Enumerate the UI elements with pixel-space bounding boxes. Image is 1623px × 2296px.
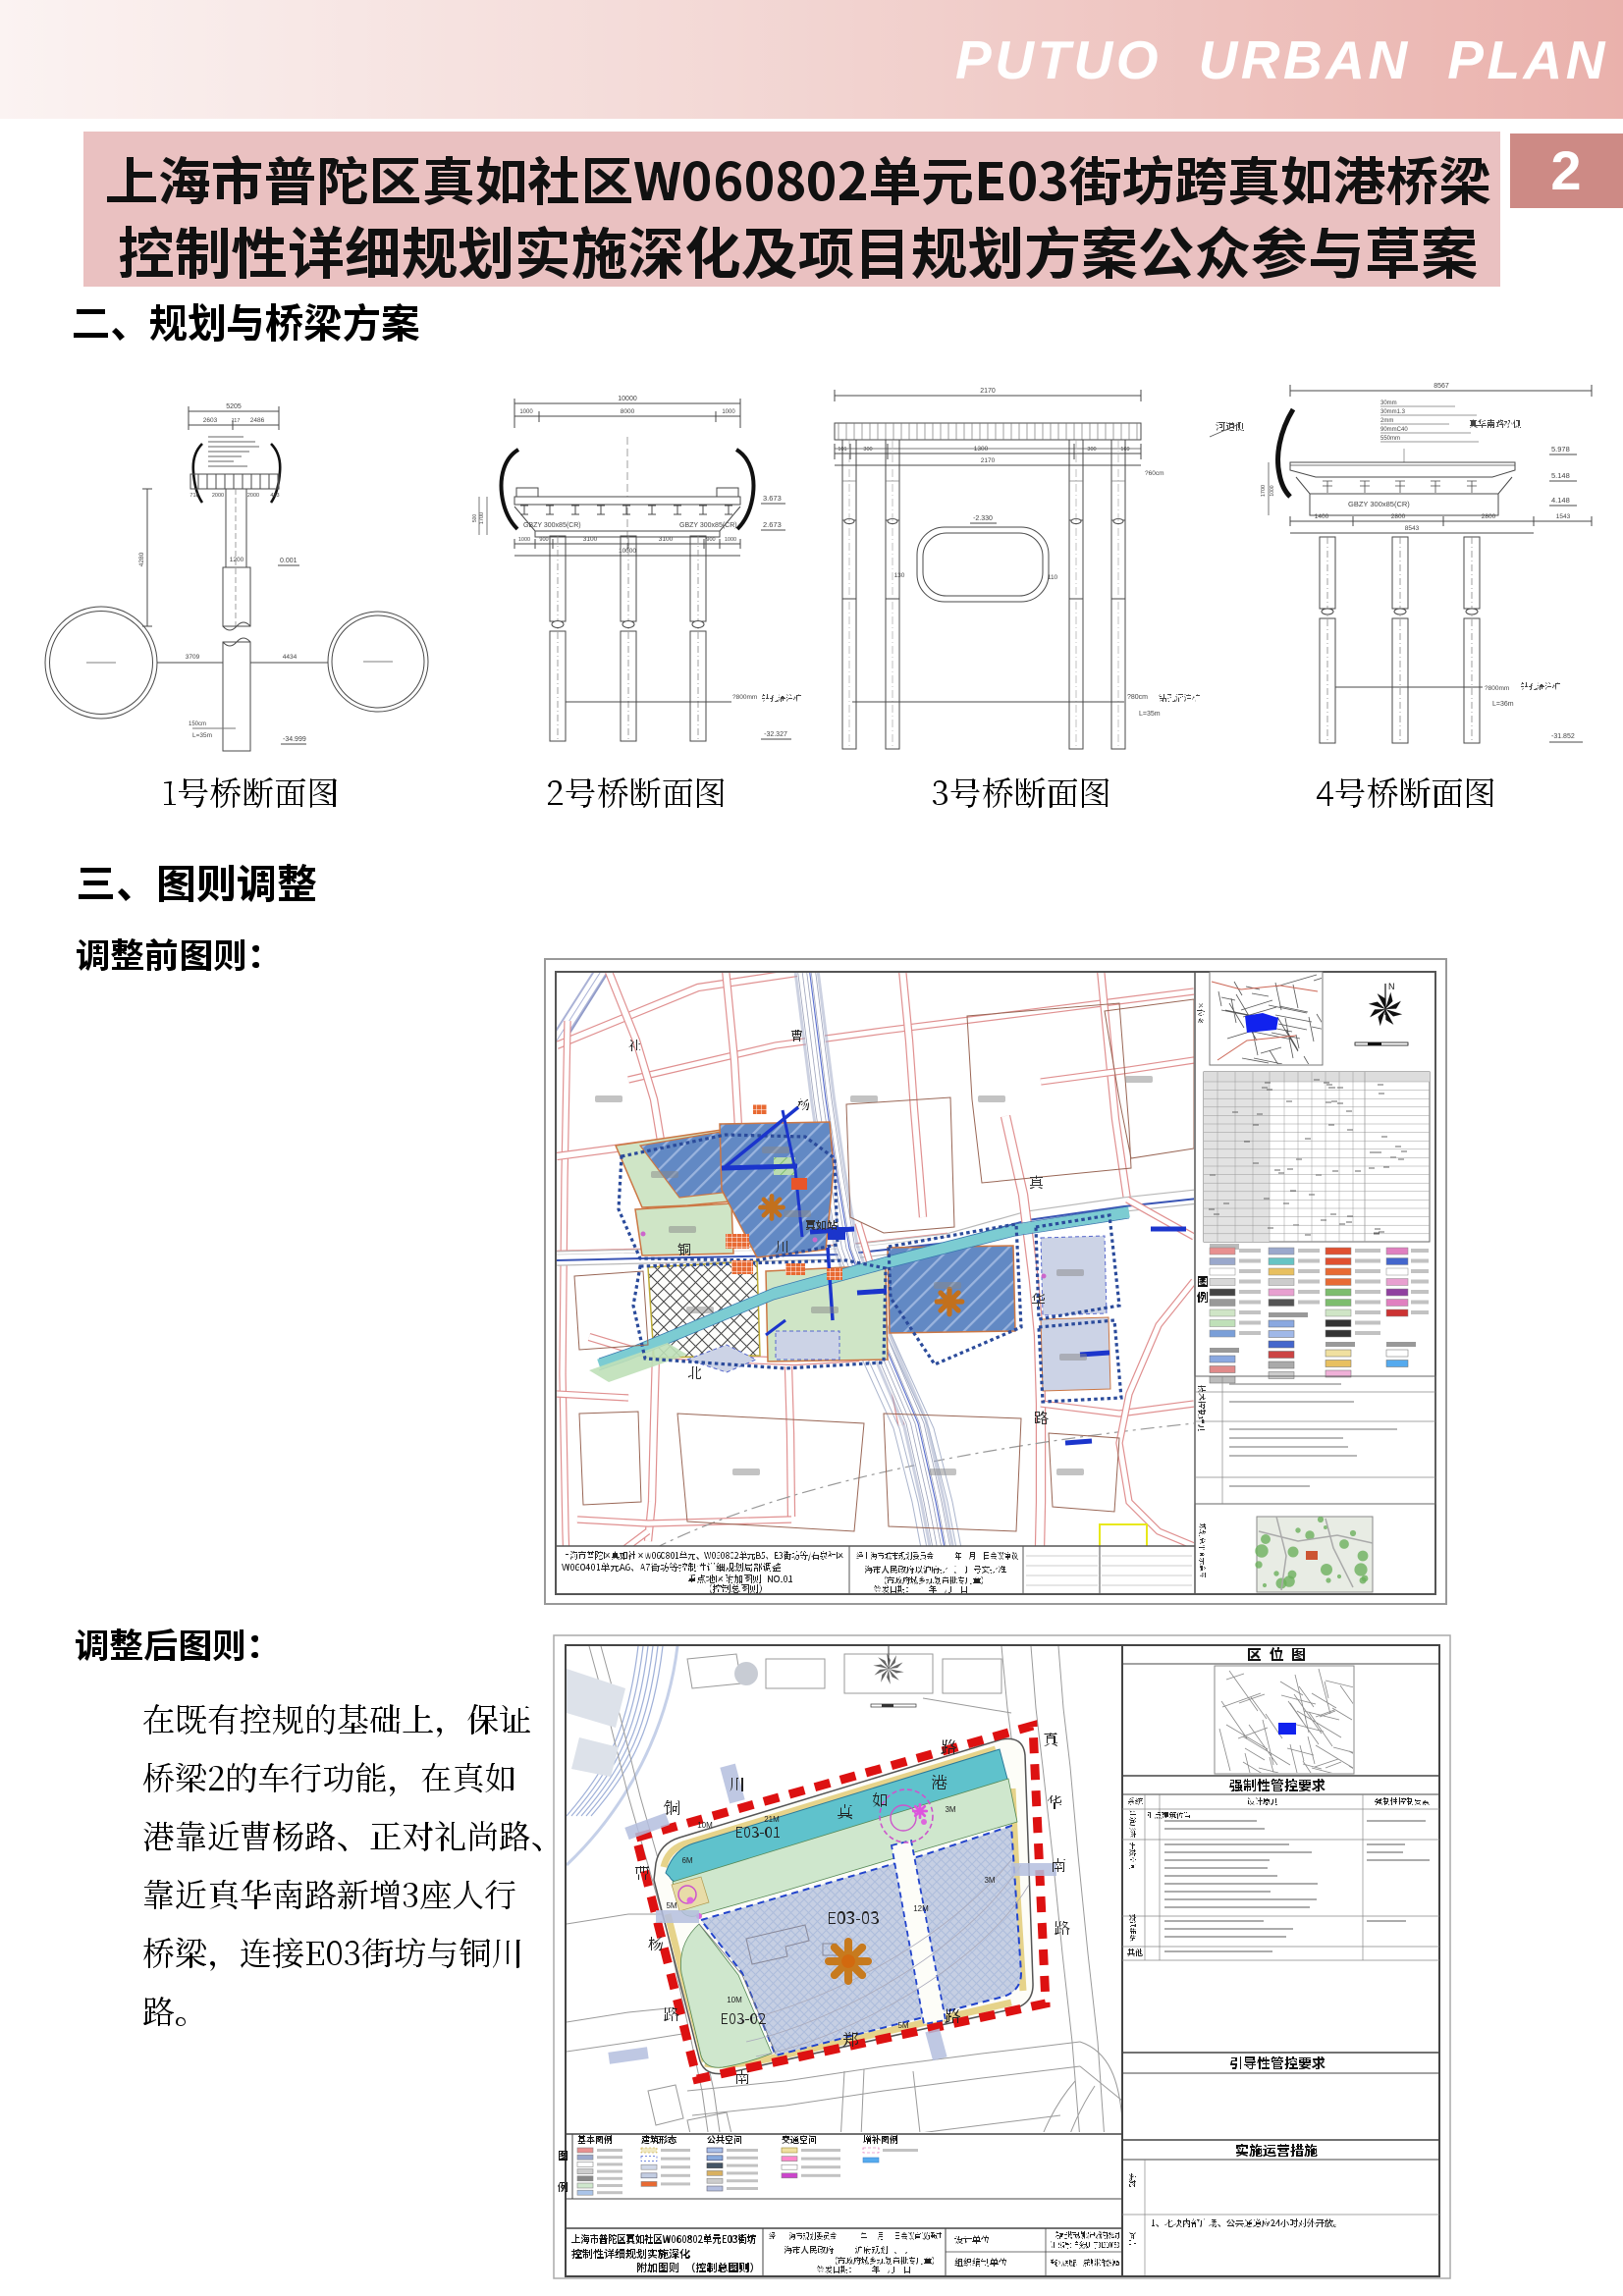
svg-text:3100: 3100 — [659, 536, 674, 543]
svg-text:3M: 3M — [984, 1876, 995, 1885]
svg-text:500: 500 — [472, 514, 478, 523]
svg-text:-2.330: -2.330 — [973, 515, 993, 522]
svg-text:300: 300 — [1087, 447, 1096, 453]
svg-text:2800: 2800 — [1391, 513, 1406, 520]
svg-text:718: 718 — [189, 493, 198, 499]
svg-text:4434: 4434 — [283, 654, 298, 661]
svg-text:1543: 1543 — [1556, 513, 1571, 520]
svg-text:-34.999: -34.999 — [283, 736, 306, 743]
svg-text:8543: 8543 — [1405, 525, 1420, 532]
svg-text:1000: 1000 — [1270, 485, 1275, 496]
svg-text:L=36m: L=36m — [1492, 701, 1514, 708]
svg-text:5.148: 5.148 — [1551, 471, 1570, 480]
svg-text:6M: 6M — [681, 1856, 692, 1865]
svg-text:?800mm: ?800mm — [732, 694, 757, 701]
svg-text:117: 117 — [232, 418, 241, 424]
svg-text:GBZY 300x85(CR): GBZY 300x85(CR) — [1348, 500, 1410, 508]
svg-text:1000: 1000 — [518, 537, 530, 543]
svg-text:PUTUO URBAN PLAN: PUTUO URBAN PLAN — [955, 29, 1608, 90]
svg-text:5.978: 5.978 — [1551, 445, 1570, 454]
svg-text:1200: 1200 — [230, 557, 244, 563]
svg-text:3.673: 3.673 — [763, 494, 782, 503]
svg-text:483: 483 — [270, 493, 279, 499]
svg-text:30mm1.3: 30mm1.3 — [1380, 409, 1406, 415]
svg-text:GBZY 300x85(CR): GBZY 300x85(CR) — [679, 522, 737, 529]
svg-text:110: 110 — [1048, 574, 1058, 581]
svg-text:8000: 8000 — [621, 408, 635, 415]
svg-text:2170: 2170 — [980, 388, 996, 395]
svg-text:10000: 10000 — [618, 396, 637, 402]
svg-text:L=35m: L=35m — [1139, 711, 1161, 718]
svg-text:GBZY 300x85(CR): GBZY 300x85(CR) — [523, 522, 581, 529]
svg-text:3M: 3M — [945, 1805, 955, 1814]
svg-text:12M: 12M — [913, 1904, 929, 1913]
svg-text:1300: 1300 — [974, 446, 989, 453]
svg-text:2.673: 2.673 — [763, 520, 782, 529]
svg-text:90mmC40: 90mmC40 — [1380, 427, 1408, 433]
svg-text:150cm: 150cm — [189, 721, 206, 727]
svg-text:0.001: 0.001 — [280, 558, 298, 564]
svg-text:8567: 8567 — [1434, 383, 1449, 390]
svg-text:2mm: 2mm — [1380, 418, 1393, 424]
svg-text:2: 2 — [1550, 139, 1581, 201]
svg-text:5M: 5M — [897, 2021, 908, 2030]
svg-text:2170: 2170 — [981, 457, 996, 464]
svg-text:N: N — [1388, 982, 1395, 991]
svg-text:900: 900 — [706, 537, 715, 543]
svg-text:21M: 21M — [764, 1815, 780, 1824]
svg-text:2800: 2800 — [1482, 513, 1496, 520]
svg-text:?60cm: ?60cm — [1145, 470, 1164, 477]
svg-text:2486: 2486 — [250, 417, 265, 424]
svg-text:4280: 4280 — [138, 552, 145, 566]
svg-text:550mm: 550mm — [1380, 436, 1400, 442]
svg-text:10M: 10M — [727, 1996, 742, 2004]
svg-text:1400: 1400 — [1315, 513, 1329, 520]
svg-text:1000: 1000 — [725, 537, 736, 543]
svg-text:1700: 1700 — [1261, 485, 1267, 497]
svg-text:-32.327: -32.327 — [764, 731, 787, 738]
svg-text:2603: 2603 — [203, 417, 218, 424]
svg-text:1700: 1700 — [479, 512, 485, 524]
svg-text:4.148: 4.148 — [1551, 496, 1570, 505]
svg-text:?800mm: ?800mm — [1485, 685, 1509, 692]
svg-text:10000: 10000 — [619, 548, 636, 555]
svg-text:L=35m: L=35m — [192, 732, 212, 739]
svg-text:1000: 1000 — [519, 409, 533, 415]
svg-text:-31.852: -31.852 — [1551, 733, 1575, 740]
svg-text:2000: 2000 — [212, 493, 224, 499]
svg-text:5205: 5205 — [226, 403, 242, 410]
svg-text:10M: 10M — [697, 1821, 713, 1830]
svg-text:1000: 1000 — [722, 409, 735, 415]
svg-text:5M: 5M — [666, 1901, 676, 1910]
svg-text:130: 130 — [894, 572, 905, 579]
svg-text:?80cm: ?80cm — [1127, 694, 1148, 701]
svg-text:2000: 2000 — [247, 493, 259, 499]
svg-text:30mm: 30mm — [1380, 400, 1397, 406]
svg-text:3100: 3100 — [583, 536, 598, 543]
svg-text:900: 900 — [539, 537, 548, 543]
svg-text:300: 300 — [863, 447, 872, 453]
svg-text:3709: 3709 — [186, 654, 200, 661]
